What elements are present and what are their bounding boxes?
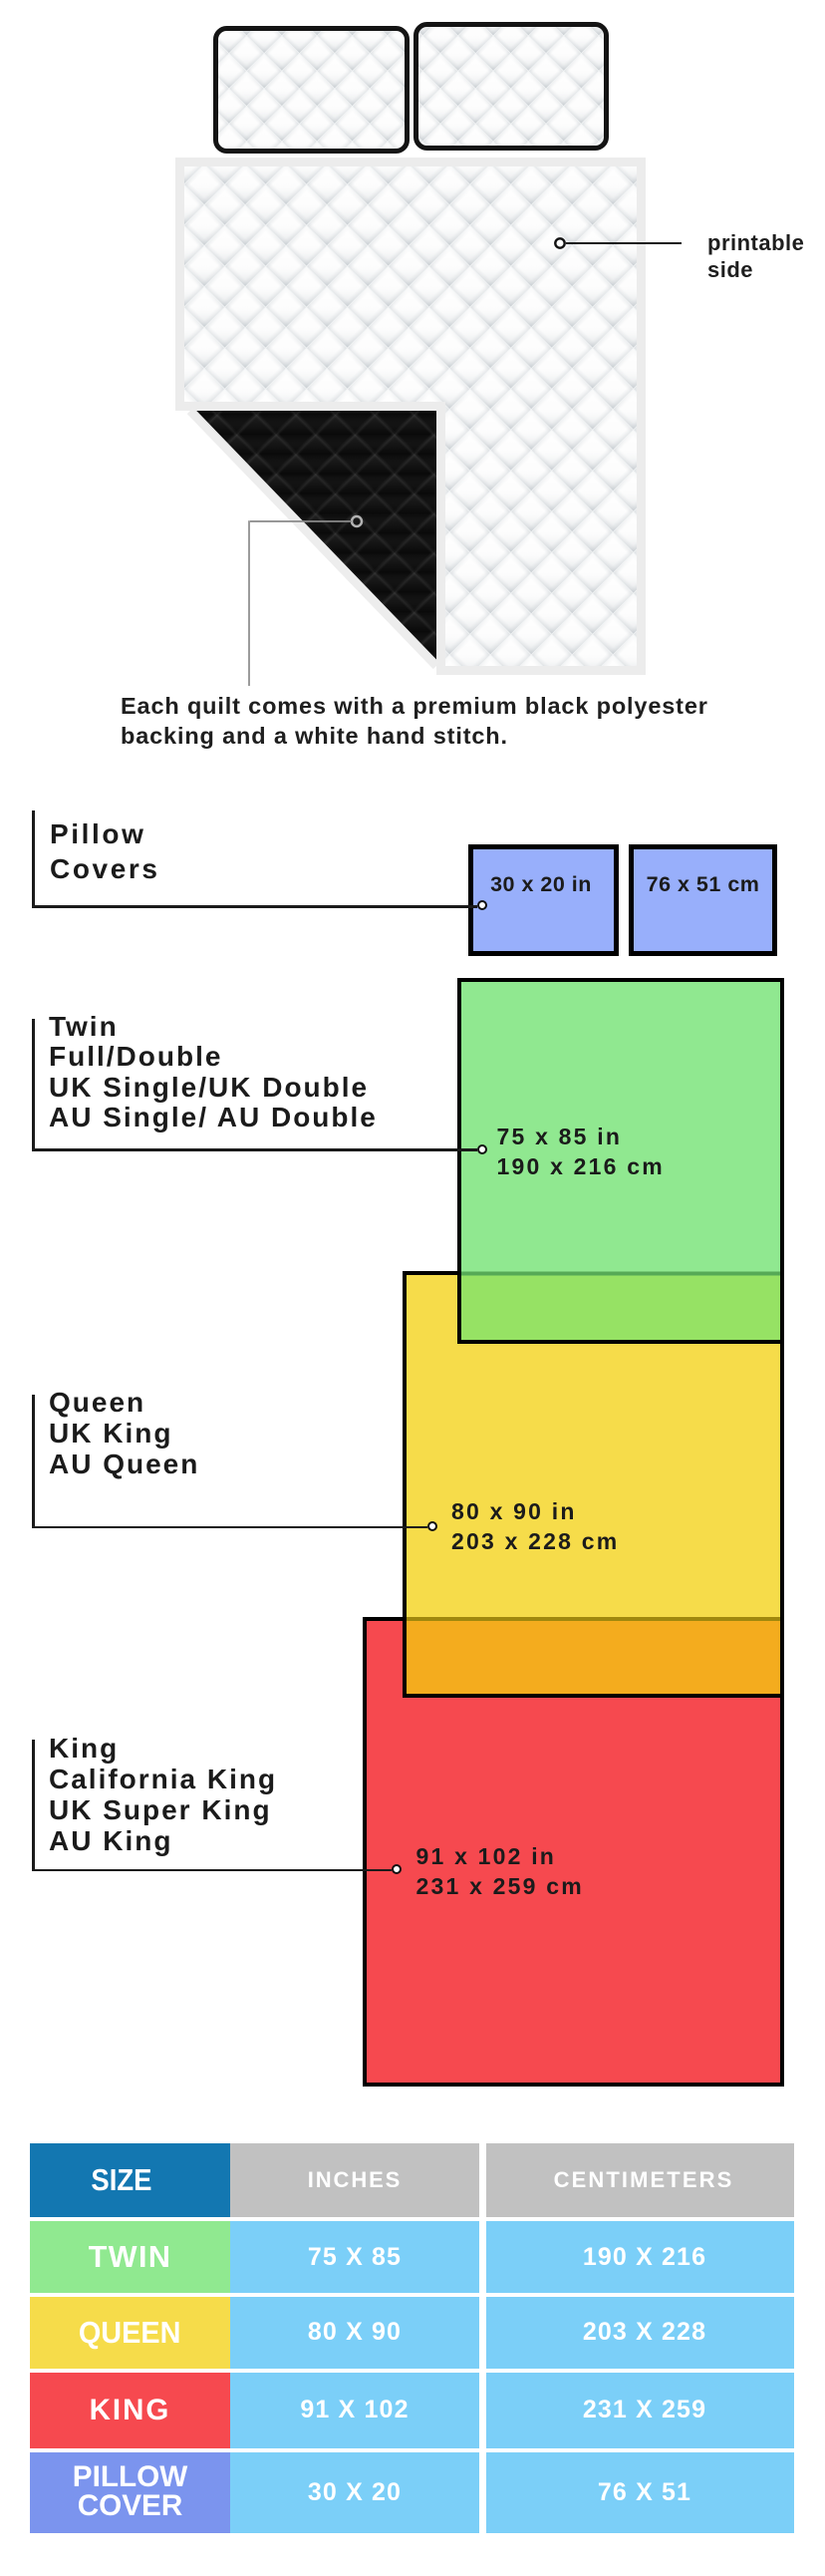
svg-text:backing and a white hand stitc: backing and a white hand stitch.	[121, 723, 508, 749]
svg-text:Each quilt comes with a premiu: Each quilt comes with a premium black po…	[121, 693, 708, 719]
svg-text:side: side	[707, 257, 753, 282]
svg-text:printable: printable	[707, 230, 804, 255]
